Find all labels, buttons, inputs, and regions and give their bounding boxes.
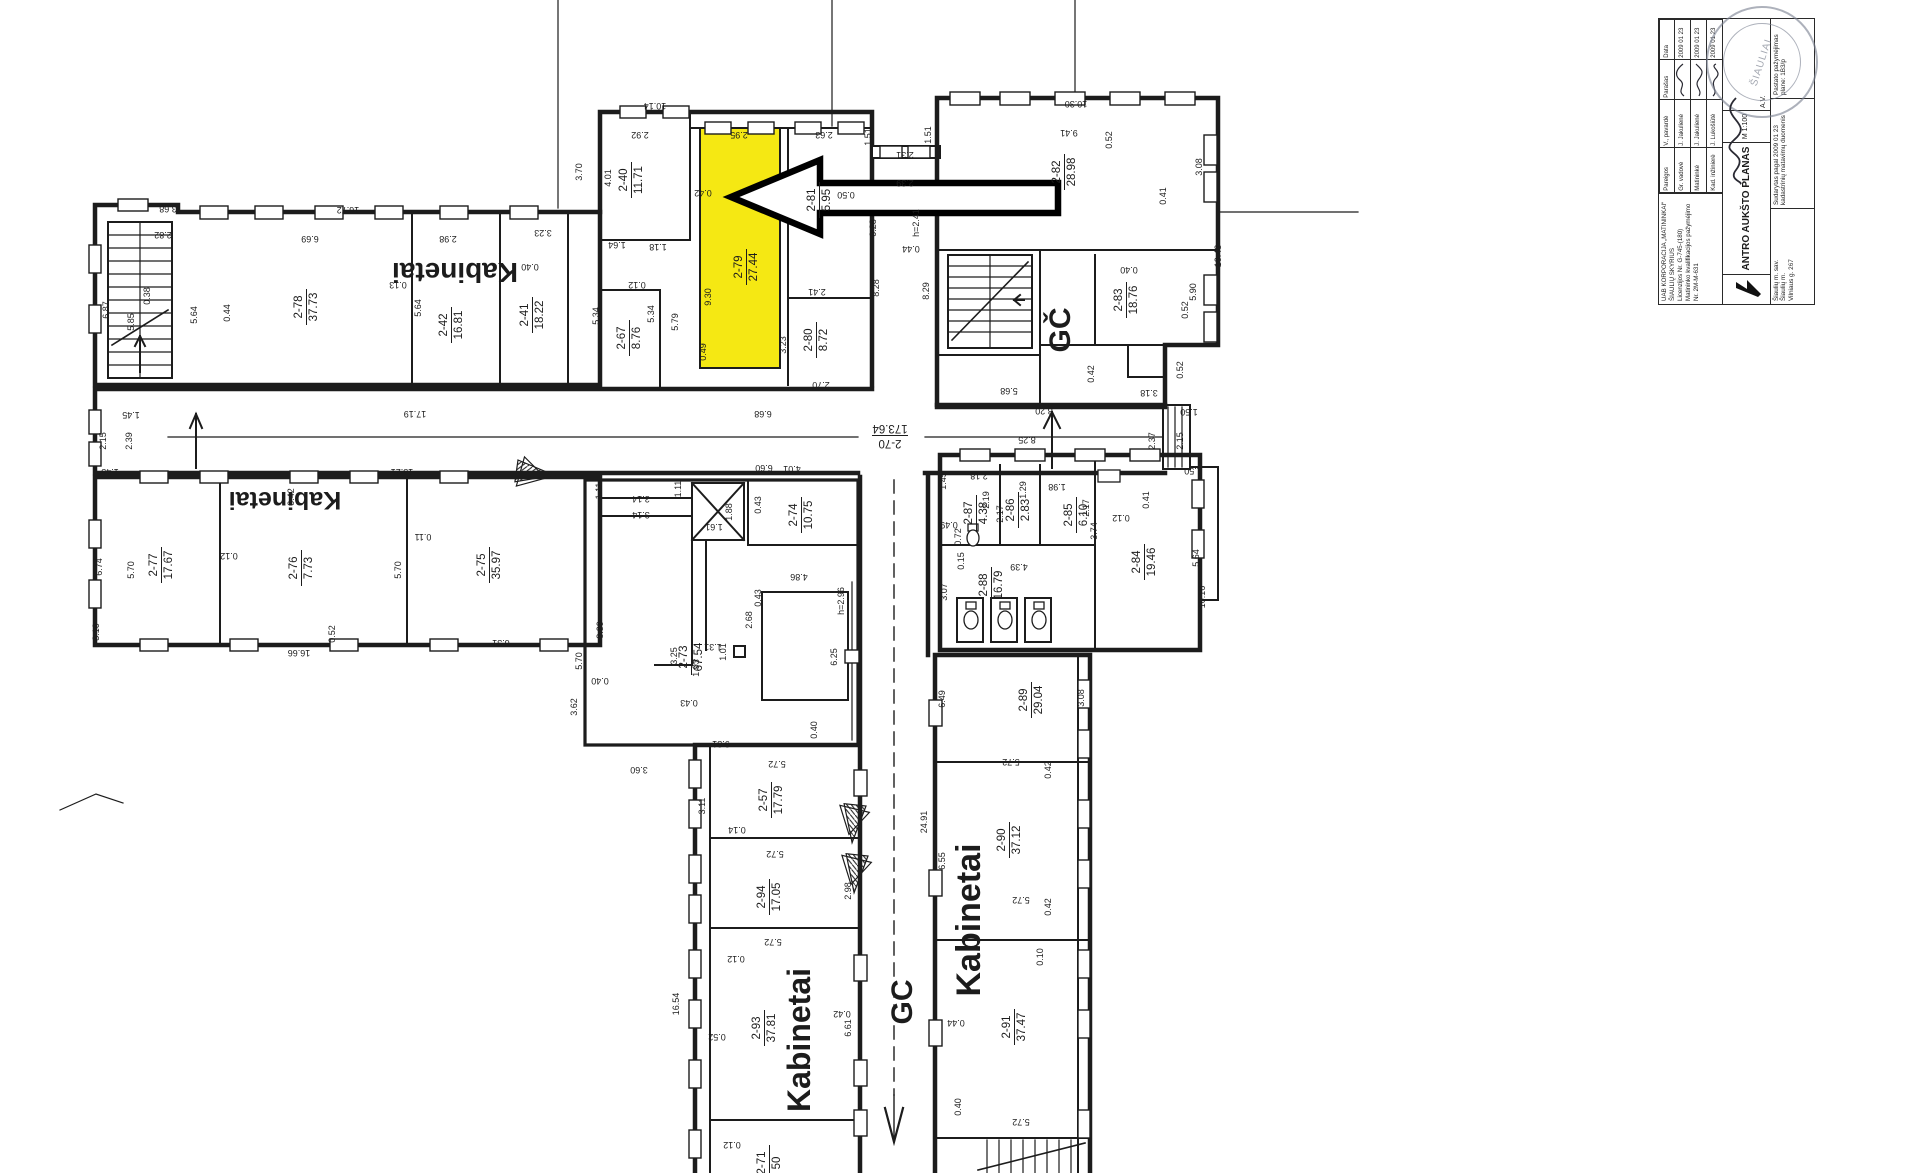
room-label: 2-8318.76: [1113, 282, 1140, 318]
svg-text:2-91: 2-91: [1001, 1015, 1013, 1038]
dimension-label: 0.43: [753, 589, 763, 607]
dimension-label: 10.14: [644, 101, 667, 111]
room-label: 2-767.73: [288, 550, 315, 586]
dimension-label: 5.68: [1000, 386, 1018, 396]
svg-text:2-40: 2-40: [618, 168, 630, 191]
floor-plan-drawing: 2-7837.732-4216.812-4118.222-4011.712-67…: [0, 0, 1914, 1173]
svg-text:7.73: 7.73: [303, 557, 315, 579]
svg-text:2-71: 2-71: [756, 1151, 768, 1173]
dimension-label: 3.74: [1089, 522, 1099, 540]
dimension-label: 5.70: [126, 561, 136, 579]
company-line: Licenzijos Nr. G-745-(180): [1677, 197, 1684, 301]
dimension-label: 5.64: [1191, 549, 1201, 567]
dimension-label: 3.14: [632, 510, 650, 520]
dimension-label: 6.31: [492, 638, 510, 648]
svg-text:18.76: 18.76: [1128, 286, 1140, 315]
dimension-label: 5.72: [766, 849, 784, 859]
dimension-label: 6.68: [754, 409, 772, 419]
svg-text:2-90: 2-90: [996, 828, 1008, 851]
svg-text:2-42: 2-42: [438, 313, 450, 336]
dimension-label: 6.55: [937, 852, 947, 870]
dimension-label: 1.88: [724, 503, 734, 521]
dimension-label: 1.50: [1180, 407, 1198, 417]
dimension-label: 0.72: [953, 528, 963, 546]
dimension-label: 1.11: [673, 481, 683, 498]
svg-text:2-74: 2-74: [788, 503, 800, 527]
room-label: 2-7535.97: [476, 547, 503, 583]
dimension-label: 6.25: [829, 648, 839, 666]
dimension-label: 0.44: [222, 304, 232, 322]
basis-line: kadastrinių matavimų duomenis: [1780, 102, 1787, 205]
dimension-label: 0.40: [809, 721, 819, 739]
dimension-label: 0.12: [220, 551, 238, 561]
dimension-label: 1.64: [608, 240, 626, 250]
dimension-label: 0.12: [723, 1140, 741, 1150]
dimension-label: 6.61: [843, 1019, 853, 1037]
table-row: Gr. vadovė J. Jakulienė 2009 01 23: [1675, 20, 1691, 193]
dimension-label: h=2.41: [911, 209, 921, 237]
stamp-text: ŠIAULIAI: [1749, 37, 1775, 87]
dimension-label: 0.49: [698, 343, 708, 361]
dimension-label: 17.19: [404, 409, 427, 419]
zone-label: Kabinetai: [229, 486, 342, 514]
dimension-label: 5.72: [768, 759, 786, 769]
svg-text:2-75: 2-75: [476, 553, 488, 576]
svg-text:17.79: 17.79: [773, 786, 785, 815]
name-cell: J. Jakulienė: [1690, 99, 1706, 147]
dimension-label: 3.23: [778, 336, 788, 354]
dimension-label: 8.29: [921, 282, 931, 300]
dimension-label: 16.54: [671, 993, 681, 1016]
dimension-label: 0.15: [956, 552, 966, 570]
dimension-label: 5.64: [413, 299, 423, 317]
dimension-label: 0.43: [680, 698, 698, 708]
room-label: 2-9037.12: [996, 822, 1023, 858]
svg-text:2-82: 2-82: [1051, 160, 1063, 183]
dimension-label: 0.44: [902, 244, 920, 254]
dimension-label: 3.25: [669, 647, 679, 665]
zone-label: Kabinetai: [781, 968, 817, 1112]
company-info: UAB KORPORACIJA „MATININKAI“ ŠIAULIŲ SKY…: [1659, 193, 1722, 304]
dimension-label: 3.14: [632, 494, 650, 504]
dimension-label: 0.42: [1086, 365, 1096, 383]
dimension-label: 0.44: [947, 1018, 965, 1028]
svg-text:2-67: 2-67: [616, 326, 628, 349]
dimension-label: 2.70: [812, 380, 830, 390]
dimension-label: 0.41: [1158, 187, 1168, 205]
svg-text:16.79: 16.79: [993, 571, 1005, 600]
dimension-label: 2.92: [631, 130, 649, 140]
dimension-label: 1.45: [122, 410, 140, 420]
dimension-label: 6.87: [101, 301, 111, 319]
svg-text:2-77: 2-77: [148, 553, 160, 576]
role-cell: Gr. vadovė: [1675, 147, 1691, 192]
table-row: Matininkė J. Jakulienė 2009 01 23: [1690, 20, 1706, 193]
svg-text:5.95: 5.95: [821, 189, 833, 211]
room-label: 2-808.72: [803, 322, 830, 358]
dimension-label: 2.68: [744, 611, 754, 629]
dimension-label: 1.18: [649, 242, 667, 252]
svg-text:2-78: 2-78: [293, 295, 305, 318]
dimension-label: 1.61: [705, 522, 723, 532]
svg-text:35.97: 35.97: [491, 551, 503, 580]
svg-text:2-73: 2-73: [678, 645, 690, 668]
svg-text:10.75: 10.75: [803, 501, 815, 530]
dimension-label: 3.68: [159, 204, 177, 214]
dimension-label: h=2.96: [836, 587, 846, 615]
dimension-label: 5.72: [1012, 1117, 1030, 1127]
room-label: 2-9137.47: [1001, 1009, 1028, 1045]
dimension-label: 10.16: [1197, 586, 1207, 609]
zone-label: Kabinetai: [950, 843, 988, 996]
dimension-label: 0.52: [1180, 301, 1190, 319]
dimension-label: 0.14: [728, 825, 746, 835]
svg-text:2-94: 2-94: [756, 885, 768, 909]
dimension-label: 1.11: [594, 483, 604, 500]
dimension-label: 3.08: [1076, 689, 1086, 707]
room-label: 2-678.76: [616, 320, 643, 356]
dimension-label: 0.52: [1175, 361, 1185, 379]
room-label: 2-9417.05: [756, 879, 783, 915]
dimension-label: 5.34: [591, 307, 601, 325]
col-header: V., pavardė: [1660, 99, 1675, 147]
dimension-label: 2.95: [730, 130, 748, 140]
dimension-label: 2.39: [896, 178, 914, 188]
room-label: 2-7410.75: [788, 497, 815, 533]
col-header: Pareigos: [1660, 147, 1675, 192]
room-label: 2-8929.04: [1018, 682, 1045, 718]
dimension-label: 0.38: [142, 287, 152, 305]
svg-text:37.12: 37.12: [1011, 826, 1023, 855]
dimension-label: 5.34: [646, 305, 656, 323]
svg-text:2-86: 2-86: [1005, 498, 1017, 521]
dimension-label: 1.01: [718, 643, 728, 661]
svg-text:2-70: 2-70: [878, 437, 901, 449]
company-line: ŠIAULIŲ SKYRIUS: [1669, 197, 1676, 301]
signature-large: [1706, 92, 1766, 188]
dimension-label: 5.79: [670, 313, 680, 331]
dimension-label: 1.29: [1018, 481, 1028, 499]
dimension-label: 2.15: [98, 432, 108, 450]
dimension-label: 2.19: [981, 491, 991, 509]
svg-text:173.64: 173.64: [872, 422, 908, 434]
dimension-label: 10.30: [1065, 99, 1088, 109]
dimension-label: 2.98: [439, 234, 457, 244]
dimension-label: 0.28: [868, 219, 878, 237]
dimension-label: 0.50: [837, 190, 855, 200]
dimension-label: 0.52: [708, 1032, 726, 1042]
dimension-label: 0.41: [1141, 491, 1151, 509]
company-logo-icon: [1723, 274, 1770, 304]
svg-text:8.76: 8.76: [631, 327, 643, 349]
room-label: 2-70173.64: [872, 422, 908, 449]
svg-text:27.44: 27.44: [748, 252, 760, 281]
dimension-label: 2.17: [1081, 499, 1091, 517]
dimension-label: 0.40: [953, 1098, 963, 1116]
dimension-label: 2.37: [1147, 432, 1157, 450]
room-label: 2-7717.67: [148, 547, 175, 583]
svg-text:2-57: 2-57: [758, 788, 770, 811]
dimension-label: 4.39: [1010, 562, 1028, 572]
dimension-label: 0.42: [694, 188, 712, 198]
address-line: Vilniaus g. 267: [1788, 212, 1795, 301]
dimension-label: 9.41: [1060, 128, 1078, 138]
dimension-label: 1.51: [863, 128, 873, 146]
address-line: Šiaulių m.: [1780, 212, 1787, 301]
dimension-label: 0.11: [415, 532, 432, 542]
signature-cell: [1675, 59, 1691, 99]
room-label: 2-4118.22: [519, 297, 546, 333]
company-line: UAB KORPORACIJA „MATININKAI“: [1661, 197, 1668, 301]
svg-text:29.04: 29.04: [1033, 685, 1045, 714]
dimension-label: 3.07: [939, 583, 949, 601]
dimension-label: 0.12: [727, 954, 745, 964]
svg-text:2-76: 2-76: [288, 556, 300, 579]
col-header: Parašas: [1660, 59, 1675, 99]
dimension-label: 3.08: [1194, 158, 1204, 176]
dimension-label: 5.90: [1188, 283, 1198, 301]
dimension-label: 0.10: [1035, 948, 1045, 966]
dimension-label: 2.63: [815, 130, 833, 140]
dimension-label: 4.01: [603, 169, 613, 187]
dimension-label: 1.93: [691, 659, 701, 677]
room-label: 2-9337.81: [751, 1010, 778, 1046]
svg-text:37.73: 37.73: [308, 293, 320, 322]
dimension-label: 16.72: [337, 205, 360, 215]
dimension-label: 3.62: [569, 698, 579, 716]
svg-text:2.83: 2.83: [1020, 499, 1032, 521]
svg-text:2-83: 2-83: [1113, 288, 1125, 311]
dimension-label: 2.17: [995, 505, 1005, 523]
dimension-label: 0.52: [327, 625, 337, 643]
dimension-label: 2.39: [124, 432, 134, 450]
dimension-label: 5.85: [126, 313, 136, 331]
name-cell: J. Jakulienė: [1675, 99, 1691, 147]
dimension-label: 3.60: [630, 765, 648, 775]
svg-text:2-88: 2-88: [978, 573, 990, 596]
room-label: 2-5717.79: [758, 782, 785, 818]
svg-text:2-93: 2-93: [751, 1016, 763, 1039]
dimension-label: 2.31: [896, 150, 914, 160]
svg-text:11.71: 11.71: [633, 166, 645, 194]
svg-text:2-85: 2-85: [1063, 503, 1075, 526]
shaft-hatch-icon: [514, 456, 556, 491]
dimension-label: 2.82: [154, 230, 172, 240]
room-label: 2-7837.73: [293, 289, 320, 325]
dimension-label: 24.91: [919, 811, 929, 834]
dimension-label: 0.42: [833, 1009, 851, 1019]
svg-text:2-89: 2-89: [1018, 688, 1030, 711]
zone-label: Kabinetai: [392, 257, 518, 288]
zone-label: GČ: [1043, 308, 1077, 353]
svg-text:37.81: 37.81: [766, 1014, 778, 1043]
dimension-label: 5.72: [764, 937, 782, 947]
zone-label: GC: [886, 980, 919, 1025]
dimension-label: 0.40: [1120, 265, 1138, 275]
role-cell: Matininkė: [1690, 147, 1706, 192]
svg-text:17.05: 17.05: [771, 883, 783, 912]
dimension-label: 0.52: [1104, 131, 1114, 149]
dimension-label: 3.18: [1140, 388, 1158, 398]
room-label: 2-4216.81: [438, 307, 465, 343]
dimension-label: 2.15: [1175, 432, 1185, 450]
dimension-label: 0.12: [628, 280, 646, 290]
dimension-label: 3.11: [697, 798, 707, 815]
dimension-label: 0.12: [1112, 513, 1130, 523]
scanned-floor-plan-page: 2-7837.732-4216.812-4118.222-4011.712-67…: [0, 0, 1914, 1173]
svg-text:18.22: 18.22: [534, 301, 546, 330]
dimension-label: 1.50: [1184, 466, 1202, 476]
dimension-label: 0.40: [591, 676, 609, 686]
dimension-label: 6.74: [94, 558, 104, 576]
dimension-label: 5.70: [574, 652, 584, 670]
dimension-label: 1.45: [938, 472, 948, 490]
dimension-label: 0.42: [1043, 761, 1053, 779]
dimension-label: 0.43: [753, 496, 763, 514]
svg-text:2-84: 2-84: [1131, 550, 1143, 574]
dimension-label: 8.28: [871, 279, 881, 297]
svg-text:2-80: 2-80: [803, 328, 815, 351]
dimension-label: 5.70: [393, 561, 403, 579]
dimension-label: 5.72: [1002, 757, 1020, 767]
svg-text:17.67: 17.67: [163, 551, 175, 580]
dimension-label: 8.39: [595, 621, 605, 639]
svg-text:2-79: 2-79: [733, 255, 745, 278]
dimension-label: 4.86: [790, 572, 808, 582]
dimension-label: 3.70: [574, 163, 584, 181]
svg-text:50: 50: [771, 1157, 783, 1170]
dimension-label: 16.66: [288, 648, 311, 658]
dimension-label: 1.45: [101, 467, 119, 477]
svg-text:2-41: 2-41: [519, 303, 531, 326]
dimension-label: 0.42: [1043, 898, 1053, 916]
dimension-label: 2.18: [970, 471, 988, 481]
svg-text:37.47: 37.47: [1016, 1013, 1028, 1042]
room-label: 2-4011.71: [618, 162, 645, 198]
room-label: 2-7150: [756, 1145, 783, 1173]
dimension-label: 9.30: [703, 288, 713, 306]
site-address: Šiaulių m. sav. Šiaulių m. Vilniaus g. 2…: [1771, 208, 1814, 304]
dimension-label: 2.98: [843, 882, 853, 900]
dimension-label: 5.72: [1012, 895, 1030, 905]
dimension-label: 1.98: [1048, 482, 1066, 492]
svg-text:16.81: 16.81: [453, 311, 465, 340]
dimension-label: 8.25: [1018, 435, 1036, 445]
highlighted-room-2-79: [700, 128, 780, 368]
svg-text:2-81: 2-81: [806, 188, 818, 211]
dimension-label: 1.51: [923, 126, 933, 144]
dimension-label: 8.20: [1035, 406, 1053, 416]
dimension-label: 6.69: [301, 234, 319, 244]
dimension-label: 10.43: [1213, 245, 1223, 268]
dimension-label: 6.60: [755, 463, 773, 473]
room-label: 2-8419.46: [1131, 544, 1158, 580]
company-line: Matininko kvalifikacijos pažymėjimo Nr. …: [1685, 197, 1699, 301]
svg-text:8.72: 8.72: [818, 329, 830, 351]
signature: [1675, 62, 1687, 98]
svg-text:28.98: 28.98: [1066, 158, 1078, 187]
dimension-label: 15.21: [391, 467, 414, 477]
svg-text:19.46: 19.46: [1146, 548, 1158, 577]
dimension-label: 5.64: [189, 306, 199, 324]
dimension-label: 0.40: [521, 262, 539, 272]
date-cell: 2009 01 23: [1690, 20, 1706, 60]
signature: [1691, 62, 1703, 98]
dimension-label: 2.41: [808, 287, 826, 297]
dimension-label: 6.49: [937, 690, 947, 708]
dimension-label: 9.31: [712, 739, 730, 749]
dimension-label: 4.01: [783, 464, 801, 474]
dimension-label: 3.23: [534, 228, 552, 238]
basis-line: Sudarytas pagal 2009 01 23: [1773, 102, 1780, 205]
col-header: Data: [1660, 20, 1675, 60]
dimension-label: 3.10: [91, 623, 101, 641]
date-cell: 2009 01 23: [1675, 20, 1691, 60]
signature-cell: [1690, 59, 1706, 99]
svg-text:2-87: 2-87: [963, 501, 975, 524]
